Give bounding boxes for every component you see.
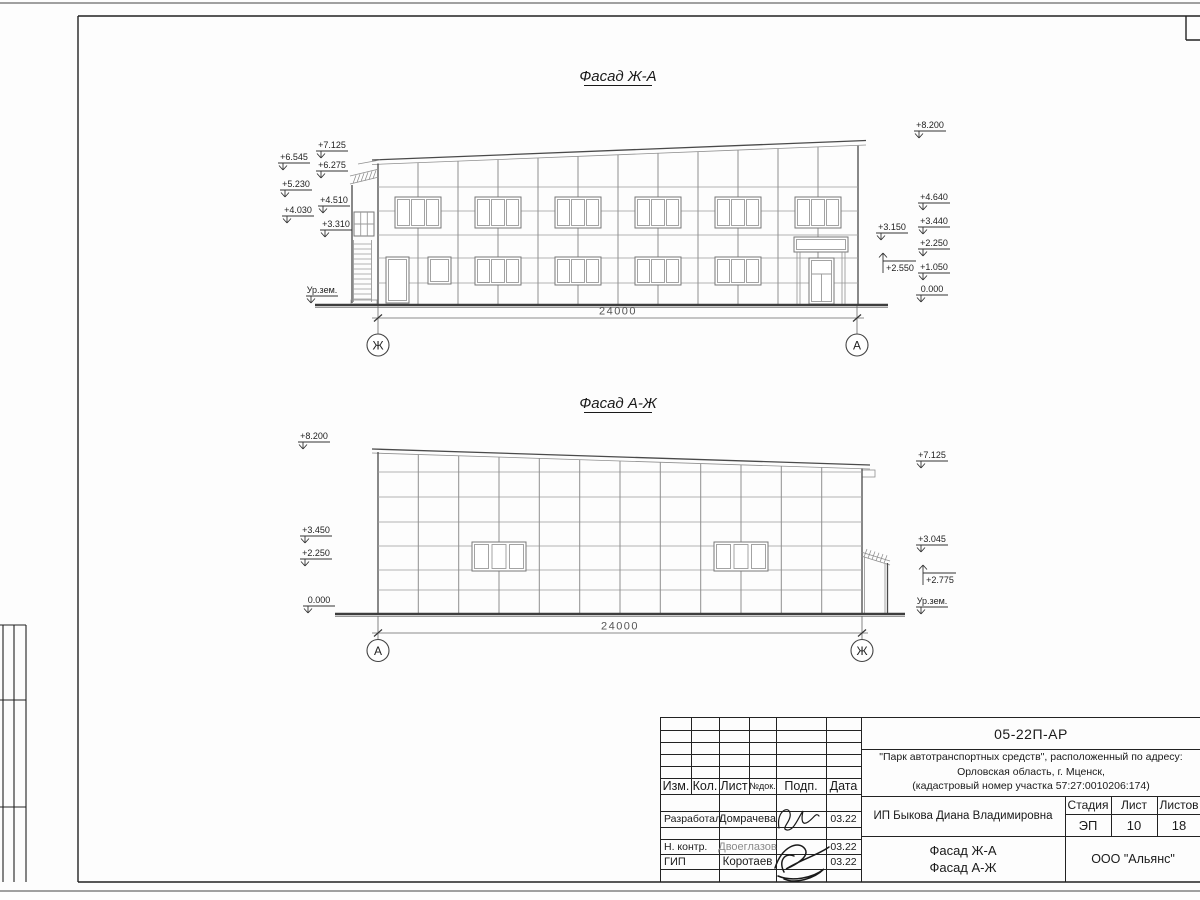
level-mark: +6.545 xyxy=(278,152,310,170)
sheet-title-2: Фасад А-Ж xyxy=(861,859,1065,876)
client-name: ИП Быкова Диана Владимировна xyxy=(861,796,1065,836)
date-2: 03.22 xyxy=(826,839,861,854)
stage-value: ЭП xyxy=(1065,814,1111,836)
sheets-total: 18 xyxy=(1157,814,1200,836)
role-razrabotal: Разработал xyxy=(661,811,719,827)
col-header-kol: Кол. xyxy=(691,778,719,794)
project-description: "Парк автотранспортных средств", располо… xyxy=(861,750,1200,796)
svg-text:+7.125: +7.125 xyxy=(318,140,346,150)
svg-text:+8.200: +8.200 xyxy=(300,431,328,441)
svg-text:+4.030: +4.030 xyxy=(284,205,312,215)
svg-text:+3.450: +3.450 xyxy=(302,525,330,535)
sheets-label: Листов xyxy=(1157,796,1200,814)
svg-text:+6.545: +6.545 xyxy=(280,152,308,162)
sheet-title-1: Фасад Ж-А xyxy=(861,842,1065,859)
svg-text:+8.200: +8.200 xyxy=(916,120,944,130)
dimension-line: 24000 xyxy=(372,306,864,335)
level-mark: +4.640 xyxy=(918,192,950,210)
axis-marker: Ж xyxy=(851,640,873,662)
svg-text:+2.250: +2.250 xyxy=(302,548,330,558)
level-mark: 0.000 xyxy=(303,595,335,613)
drawing-sheet: Фасад Ж-А xyxy=(0,0,1200,900)
dimension-text: 24000 xyxy=(599,306,637,318)
project-line-3: (кадастровый номер участка 57:27:0010206… xyxy=(861,779,1200,794)
left-door xyxy=(386,257,409,303)
svg-text:Ж: Ж xyxy=(372,339,383,353)
name-dvoeglazov: Двоеглазов xyxy=(719,839,776,854)
svg-text:+3.440: +3.440 xyxy=(920,216,948,226)
title-block: Изм. Кол. Лист №док. Подп. Дата Разработ… xyxy=(660,717,1200,882)
level-mark: Ур.зем. xyxy=(916,596,948,614)
axis-marker: А xyxy=(846,334,868,356)
facade-azh-title: Фасад А-Ж xyxy=(579,395,658,412)
svg-text:+4.640: +4.640 xyxy=(920,192,948,202)
left-annex xyxy=(350,169,379,304)
axis-marker: А xyxy=(367,640,389,662)
level-mark: +2.250 xyxy=(918,238,950,256)
svg-text:+3.310: +3.310 xyxy=(322,219,350,229)
sheet-label: Лист xyxy=(1111,796,1157,814)
dimension-line: 24000 xyxy=(372,616,868,640)
level-mark: +2.250 xyxy=(300,548,332,566)
level-mark: +4.510 xyxy=(318,195,350,213)
signature-korotaev xyxy=(775,845,829,881)
svg-text:+2.250: +2.250 xyxy=(920,238,948,248)
entrance xyxy=(794,237,848,304)
date-3: 03.22 xyxy=(826,854,861,869)
svg-text:+4.510: +4.510 xyxy=(320,195,348,205)
organization-name: ООО "Альянс" xyxy=(1065,836,1200,882)
svg-text:А: А xyxy=(853,339,861,353)
col-header-doc: №док. xyxy=(749,778,776,794)
right-annex xyxy=(861,549,890,614)
svg-text:Ур.зем.: Ур.зем. xyxy=(917,596,948,606)
svg-text:0.000: 0.000 xyxy=(921,284,944,294)
col-header-data: Дата xyxy=(826,778,861,794)
facade-zha-drawing: Фасад Ж-А xyxy=(278,68,950,356)
project-line-1: "Парк автотранспортных средств", располо… xyxy=(861,750,1200,765)
axis-marker: Ж xyxy=(367,334,389,356)
name-korotaev: Коротаев xyxy=(719,854,776,869)
roof-edge-box xyxy=(862,470,875,477)
level-mark: +6.275 xyxy=(316,160,348,178)
level-mark: +3.045 xyxy=(916,534,948,552)
svg-text:+3.150: +3.150 xyxy=(878,222,906,232)
stage-label: Стадия xyxy=(1065,796,1111,814)
svg-text:+2.550: +2.550 xyxy=(886,263,914,273)
col-header-podp: Подп. xyxy=(776,778,826,794)
role-nkontr: Н. контр. xyxy=(661,839,719,854)
svg-text:0.000: 0.000 xyxy=(308,595,331,605)
svg-text:+3.045: +3.045 xyxy=(918,534,946,544)
name-domracheva: Домрачева xyxy=(719,811,776,827)
level-mark: +2.775 xyxy=(919,565,956,585)
role-gip: ГИП xyxy=(661,854,719,869)
level-mark: 0.000 xyxy=(916,284,948,302)
doc-number: 05-22П-АР xyxy=(861,718,1200,749)
level-mark: +8.200 xyxy=(914,120,946,138)
col-header-list: Лист xyxy=(719,778,749,794)
svg-text:А: А xyxy=(374,644,382,658)
facade-azh-drawing: Фасад А-Ж xyxy=(298,395,956,662)
level-mark: +5.230 xyxy=(280,179,312,197)
level-mark: +3.450 xyxy=(300,525,332,543)
level-mark: +8.200 xyxy=(298,431,330,449)
svg-text:Ж: Ж xyxy=(856,644,867,658)
level-mark: +2.550 xyxy=(879,253,916,273)
sheet-content-title: Фасад Ж-А Фасад А-Ж xyxy=(861,842,1065,882)
small-window xyxy=(428,257,451,284)
level-mark: +7.125 xyxy=(916,450,948,468)
col-header-izm: Изм. xyxy=(661,778,691,794)
level-mark: +3.150 xyxy=(876,222,908,240)
project-line-2: Орловская область, г. Мценск, xyxy=(861,765,1200,780)
facade-zha-title: Фасад Ж-А xyxy=(579,68,656,85)
svg-text:+7.125: +7.125 xyxy=(918,450,946,460)
sheet-number: 10 xyxy=(1111,814,1157,836)
svg-text:+5.230: +5.230 xyxy=(282,179,310,189)
svg-text:+1.050: +1.050 xyxy=(920,262,948,272)
level-mark: +3.440 xyxy=(918,216,950,234)
svg-text:Ур.зем.: Ур.зем. xyxy=(307,285,338,295)
level-mark: +7.125 xyxy=(316,140,348,158)
date-1: 03.22 xyxy=(826,811,861,827)
level-mark: +4.030 xyxy=(282,205,314,223)
svg-text:+2.775: +2.775 xyxy=(926,575,954,585)
level-mark: Ур.зем. xyxy=(306,285,338,303)
annex-ladder xyxy=(351,240,377,304)
dimension-text: 24000 xyxy=(601,621,639,633)
lower-windows xyxy=(428,257,761,285)
level-mark: +1.050 xyxy=(918,262,950,280)
left-margin-table xyxy=(0,625,26,882)
level-mark: +3.310 xyxy=(320,219,352,237)
svg-text:+6.275: +6.275 xyxy=(318,160,346,170)
